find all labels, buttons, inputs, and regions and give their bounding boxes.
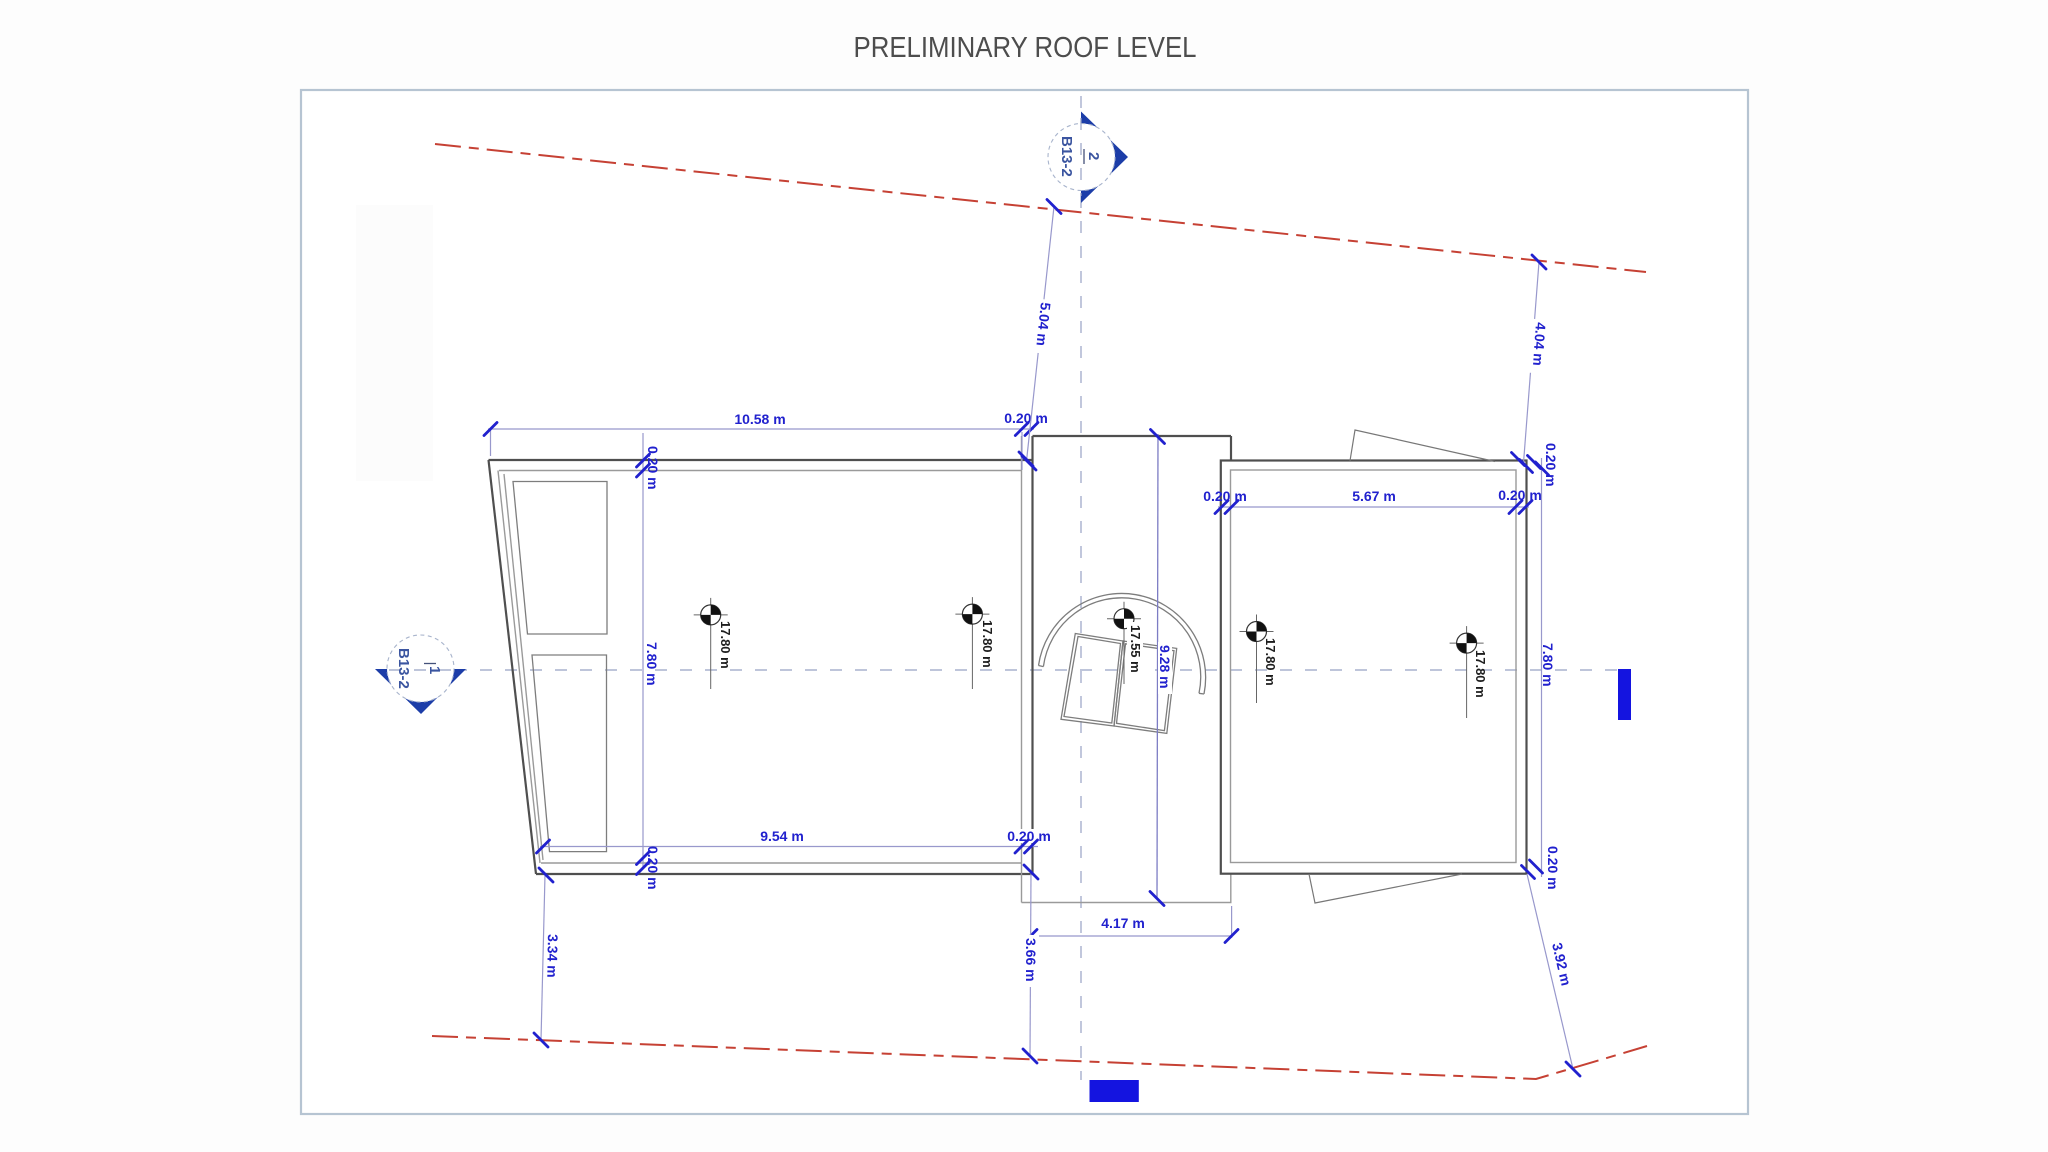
svg-text:4.04 m: 4.04 m [1530, 322, 1549, 367]
svg-text:1: 1 [426, 666, 443, 674]
svg-text:3.34 m: 3.34 m [544, 934, 561, 978]
svg-text:4.17 m: 4.17 m [1101, 915, 1145, 931]
svg-text:0.20 m: 0.20 m [645, 446, 661, 490]
svg-text:7.80 m: 7.80 m [1540, 643, 1556, 687]
svg-text:0.20 m: 0.20 m [1007, 828, 1051, 844]
svg-text:17.55 m: 17.55 m [1128, 625, 1143, 673]
svg-text:0.20 m: 0.20 m [1543, 443, 1559, 487]
svg-text:17.80 m: 17.80 m [718, 621, 733, 669]
svg-text:17.80 m: 17.80 m [1473, 650, 1488, 698]
svg-text:2: 2 [1085, 152, 1102, 160]
svg-text:3.66 m: 3.66 m [1023, 938, 1039, 982]
svg-text:0.20 m: 0.20 m [645, 846, 661, 890]
svg-text:5.67 m: 5.67 m [1352, 488, 1396, 504]
svg-text:0.20 m: 0.20 m [1203, 488, 1247, 504]
svg-text:9.54 m: 9.54 m [760, 828, 804, 844]
svg-text:10.58 m: 10.58 m [734, 411, 785, 427]
svg-text:17.80 m: 17.80 m [980, 620, 995, 668]
svg-text:PRELIMINARY ROOF LEVEL: PRELIMINARY ROOF LEVEL [854, 32, 1197, 64]
svg-text:B13-2: B13-2 [1058, 136, 1075, 177]
svg-text:0.20 m: 0.20 m [1498, 487, 1542, 503]
svg-text:B13-2: B13-2 [395, 648, 412, 689]
svg-text:7.80 m: 7.80 m [644, 642, 660, 686]
svg-text:17.80 m: 17.80 m [1263, 638, 1278, 686]
svg-text:0.20 m: 0.20 m [1545, 846, 1561, 890]
svg-text:9.28 m: 9.28 m [1157, 645, 1173, 689]
